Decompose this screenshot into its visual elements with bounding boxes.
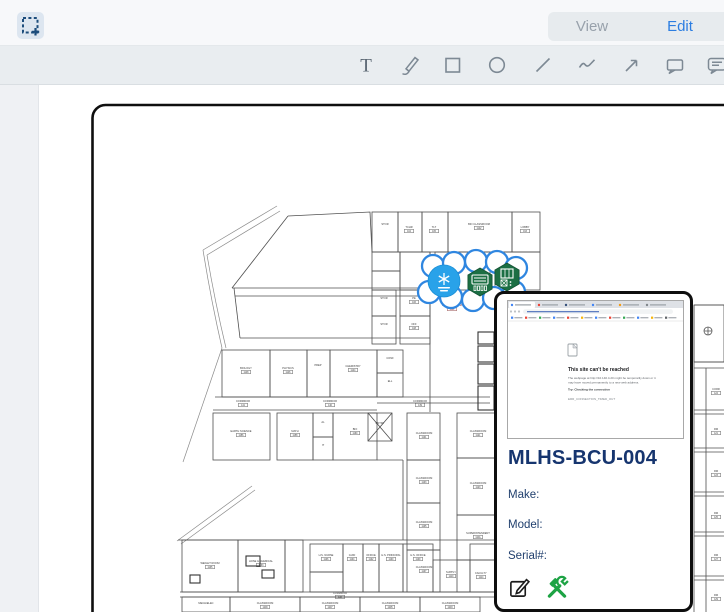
svg-text:BIOLOGY: BIOLOGY: [240, 366, 252, 370]
marquee-select-icon: [19, 14, 43, 38]
svg-text:RM: RM: [714, 469, 718, 473]
edit-equipment-button[interactable]: [508, 576, 531, 599]
svg-text:CLASSROOM: CLASSROOM: [442, 601, 459, 605]
polyline-tool-icon: [575, 53, 599, 77]
svg-text:MECH/ELEC: MECH/ELEC: [198, 601, 213, 605]
ellipse-tool-icon: [485, 53, 509, 77]
svg-text:may have moved permanently to: may have moved permanently to a new web …: [568, 381, 639, 385]
svg-text:CLASSROOM: CLASSROOM: [257, 601, 274, 605]
svg-text:1146: 1146: [286, 372, 292, 374]
svg-text:SUPERINTENDENT: SUPERINTENDENT: [466, 531, 490, 535]
svg-text:CORRIDOR: CORRIDOR: [413, 399, 427, 403]
svg-text:1109: 1109: [416, 559, 422, 561]
svg-text:1102: 1102: [369, 559, 375, 561]
svg-text:RM: RM: [714, 593, 718, 597]
svg-text:CLASSROOM: CLASSROOM: [416, 476, 433, 480]
svg-text:WEIGHT ROOM: WEIGHT ROOM: [200, 561, 219, 565]
marquee-select-tool-button[interactable]: [17, 12, 44, 39]
mini-error-file-icon: [568, 344, 577, 356]
svg-text:ENTRY: ENTRY: [376, 421, 385, 425]
svg-text:1110: 1110: [449, 576, 454, 578]
rectangle-tool-icon: [441, 53, 465, 77]
svg-text:1207: 1207: [327, 607, 333, 609]
svg-text:1158: 1158: [293, 435, 299, 437]
svg-text:1104: 1104: [350, 559, 356, 561]
svg-text:CLASSROOM: CLASSROOM: [470, 481, 487, 485]
arrow-tool-button[interactable]: [620, 53, 644, 77]
ellipse-tool-button[interactable]: [485, 53, 509, 77]
polyline-tool-button[interactable]: [575, 53, 599, 77]
svg-text:CORRIDOR: CORRIDOR: [323, 399, 337, 403]
svg-text:1156: 1156: [239, 435, 245, 437]
svg-text:1105: 1105: [422, 526, 428, 528]
svg-text:OFFICE: OFFICE: [366, 553, 376, 557]
view-edit-toggle: View Edit: [548, 12, 724, 41]
svg-text:FACULTY: FACULTY: [475, 571, 487, 575]
svg-text:1121: 1121: [476, 435, 482, 437]
line-tool-icon: [531, 53, 555, 77]
svg-text:RM: RM: [714, 511, 718, 515]
device-marker-snowflake[interactable]: [428, 265, 460, 297]
svg-text:CHEMISTRY: CHEMISTRY: [345, 364, 360, 368]
equipment-title: MLHS-BCU-004: [508, 447, 680, 470]
svg-text:ERR_CONNECTION_TIMED_OUT: ERR_CONNECTION_TIMED_OUT: [568, 397, 615, 401]
svg-text:T: T: [360, 56, 372, 77]
card-action-row: [508, 575, 680, 601]
svg-text:H.S. OFFICE: H.S. OFFICE: [410, 553, 426, 557]
equipment-popup-card[interactable]: This site can't be reachedThe webpage at…: [494, 291, 693, 612]
svg-text:110A: 110A: [475, 536, 481, 539]
browser-error-thumbnail: This site can't be reachedThe webpage at…: [508, 301, 683, 438]
svg-text:CORRIDOR: CORRIDOR: [333, 591, 347, 595]
svg-text:1100: 1100: [389, 559, 395, 561]
svg-text:MATH: MATH: [291, 429, 298, 433]
text-tool-icon: T: [354, 53, 378, 77]
svg-text:H.S. NURSE: H.S. NURSE: [319, 553, 334, 557]
pen-tool-button[interactable]: [399, 53, 423, 77]
arrow-tool-icon: [620, 53, 644, 77]
svg-text:Try: Checking the connection: Try: Checking the connection: [568, 388, 610, 392]
svg-text:IT: IT: [322, 443, 325, 447]
svg-text:1203: 1203: [447, 607, 453, 609]
svg-text:1101: 1101: [422, 437, 428, 439]
model-label: Model:: [508, 519, 680, 531]
serial-label: Serial#:: [508, 550, 680, 562]
cluster-circle[interactable]: [465, 250, 487, 272]
svg-text:CLASSROOM: CLASSROOM: [382, 601, 399, 605]
equipment-screenshot-thumbnail[interactable]: This site can't be reachedThe webpage at…: [507, 300, 684, 439]
svg-text:GUID: GUID: [349, 553, 356, 557]
svg-text:1133: 1133: [259, 565, 265, 567]
svg-text:1144: 1144: [351, 370, 357, 372]
svg-text:BIO CLASSROOM: BIO CLASSROOM: [468, 222, 490, 226]
top-header: View Edit: [0, 0, 724, 46]
svg-text:RM: RM: [714, 427, 718, 431]
svg-text:1209: 1209: [262, 607, 268, 609]
svg-text:BIO: BIO: [353, 427, 357, 431]
svg-text:CORR: CORR: [712, 387, 720, 391]
svg-text:HOSE & CHEMICAL: HOSE & CHEMICAL: [249, 559, 273, 563]
callout-tool-button[interactable]: [663, 53, 687, 77]
svg-text:1160: 1160: [353, 433, 359, 435]
svg-text:1131: 1131: [450, 309, 456, 311]
svg-text:1148: 1148: [244, 372, 250, 374]
line-tool-button[interactable]: [531, 53, 555, 77]
svg-text:STOR: STOR: [381, 222, 388, 226]
rectangle-tool-button[interactable]: [441, 53, 465, 77]
svg-text:1106: 1106: [324, 559, 330, 561]
svg-text:PREP: PREP: [314, 363, 321, 367]
svg-text:OFF: OFF: [411, 322, 417, 326]
svg-text:The webpage at http://10.140.4: The webpage at http://10.140.4.20 might …: [568, 376, 656, 380]
svg-text:CLASSROOM: CLASSROOM: [416, 565, 433, 569]
svg-text:TCHR: TCHR: [405, 225, 412, 229]
maintenance-tools-button[interactable]: [544, 575, 570, 601]
svg-text:CLASSROOM: CLASSROOM: [416, 520, 433, 524]
map-canvas[interactable]: STORTCHR104TLT105BIO CLASSROOM1142LOBBY1…: [0, 85, 724, 612]
svg-text:1123: 1123: [476, 487, 482, 489]
svg-text:1142: 1142: [477, 228, 483, 230]
svg-text:ELL: ELL: [388, 379, 393, 383]
svg-text:CORRIDOR: CORRIDOR: [236, 399, 250, 403]
svg-text:H.S. PRINCIPAL: H.S. PRINCIPAL: [381, 553, 401, 557]
pen-tool-icon: [399, 53, 423, 77]
svg-text:PE: PE: [412, 296, 416, 300]
make-label: Make:: [508, 489, 680, 501]
svg-text:STOR: STOR: [380, 322, 387, 326]
text-tool-button[interactable]: T: [354, 53, 378, 77]
svg-text:This site can't be reached: This site can't be reached: [568, 367, 629, 373]
svg-text:1114: 1114: [479, 577, 484, 579]
svg-text:CLASSROOM: CLASSROOM: [470, 429, 487, 433]
svg-text:CONF: CONF: [386, 356, 394, 360]
view-tab[interactable]: View: [548, 18, 636, 35]
svg-text:STOR: STOR: [380, 296, 387, 300]
svg-text:CLASSROOM: CLASSROOM: [416, 431, 433, 435]
svg-text:1103: 1103: [422, 482, 428, 484]
svg-text:1205: 1205: [387, 607, 393, 609]
callout-tool-icon: [663, 53, 687, 77]
drawing-toolbar: T: [0, 46, 724, 85]
svg-text:EARTH SCIENCE: EARTH SCIENCE: [231, 429, 252, 433]
svg-text:RM: RM: [714, 553, 718, 557]
svg-text:1107: 1107: [422, 571, 428, 573]
svg-text:LOBBY: LOBBY: [521, 225, 530, 229]
svg-text:CLASSROOM: CLASSROOM: [322, 601, 339, 605]
svg-text:AL: AL: [321, 420, 325, 424]
comment-tool-icon: [705, 53, 724, 77]
svg-text:TLT: TLT: [432, 225, 437, 229]
svg-text:SUPPLY: SUPPLY: [446, 570, 456, 574]
comment-tool-button[interactable]: [705, 53, 724, 77]
edit-tab[interactable]: Edit: [636, 18, 724, 35]
svg-text:PHYSICS: PHYSICS: [282, 366, 294, 370]
svg-text:1135: 1135: [208, 567, 214, 569]
